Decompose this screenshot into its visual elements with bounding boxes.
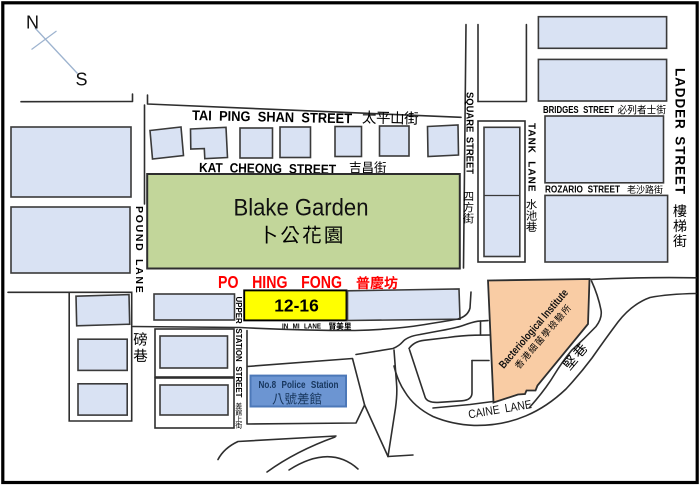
svg-text:Blake Garden: Blake Garden [234, 195, 369, 222]
svg-text:S: S [76, 70, 88, 90]
svg-text:PO HING FONG: PO HING FONG [218, 272, 342, 292]
svg-text:TAI PING SHAN STREET: TAI PING SHAN STREET [192, 107, 353, 126]
svg-text:BRIDGES STREET: BRIDGES STREET [543, 105, 614, 116]
svg-text:N: N [26, 13, 39, 33]
svg-text:POUND LANE: POUND LANE [133, 206, 145, 294]
svg-text:TANK LANE: TANK LANE [526, 123, 537, 193]
svg-text:UPPER STATION STREET: UPPER STATION STREET [234, 297, 243, 398]
svg-text:LADDER STREET: LADDER STREET [673, 68, 688, 195]
svg-text:SQUARE STREET: SQUARE STREET [463, 92, 474, 174]
svg-text:12-16: 12-16 [274, 296, 319, 316]
svg-text:No.8 Police Station: No.8 Police Station [259, 379, 339, 391]
svg-text:ROZARIO STREET: ROZARIO STREET [545, 185, 620, 196]
